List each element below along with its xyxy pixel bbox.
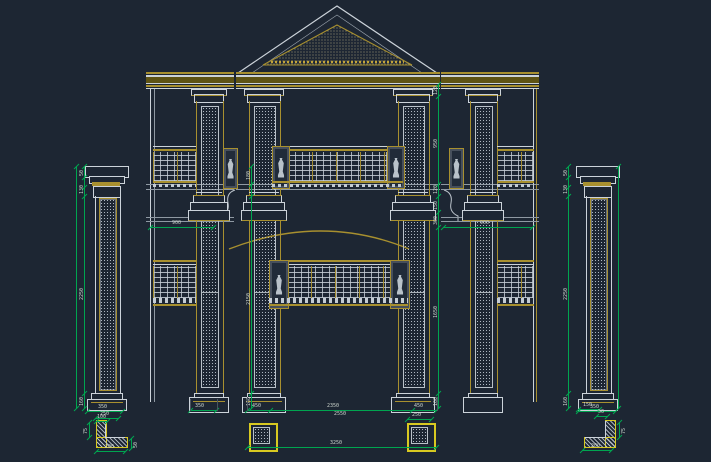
dim-label: 100	[97, 415, 106, 420]
dim-label: 120	[434, 86, 439, 95]
dim-label: 2550	[334, 412, 346, 417]
dim-corner-small	[131, 438, 132, 449]
cornice-line	[236, 85, 440, 87]
dim-label: 200	[105, 445, 114, 450]
dim-corner-top-right	[578, 409, 600, 410]
rail-dentils	[153, 184, 196, 187]
column-shaft	[95, 196, 121, 393]
dim-label: 2250	[564, 288, 569, 300]
dim-label: 900	[480, 221, 489, 226]
column-shaft	[398, 101, 430, 393]
rail-line	[153, 146, 196, 147]
dim-label: 250	[412, 413, 421, 418]
capital-line	[470, 192, 496, 193]
extension-line	[437, 397, 438, 411]
dim-label: 160	[564, 397, 569, 406]
dim-label: 3250	[330, 441, 342, 446]
dim-label: 200	[591, 444, 600, 449]
rail-line	[269, 264, 408, 265]
rail-dentils	[497, 298, 534, 303]
capital-band	[390, 210, 436, 221]
corner-inner-line	[585, 437, 605, 438]
rail-gold	[272, 181, 403, 183]
panel-divider	[202, 292, 218, 293]
corner-inner-line	[605, 421, 606, 438]
column-ornament-panel	[201, 106, 219, 388]
dim-extension-left	[76, 166, 77, 409]
cornice-line	[236, 72, 440, 74]
lattice-panel	[497, 266, 534, 298]
cornice-band	[146, 76, 234, 84]
dim-label: 150	[434, 201, 439, 210]
capital-line	[398, 192, 428, 193]
lattice-panel	[153, 266, 196, 298]
dim-label: 120	[434, 185, 439, 194]
dim-label: 350	[98, 405, 107, 410]
balustrade-2f-left-wing	[153, 146, 196, 187]
rail-dentils	[497, 184, 534, 187]
dim-left-wing-width	[150, 227, 214, 228]
dim-label: 150	[583, 403, 592, 408]
dim-label: 180	[247, 171, 252, 180]
dim-label: 50	[134, 442, 139, 448]
dim-extension-right	[618, 166, 619, 409]
pilaster-right-wing	[462, 88, 504, 418]
plinth-gold-line	[91, 402, 123, 403]
extension-line	[247, 397, 248, 411]
rail-gold	[153, 304, 196, 306]
rail-gold	[153, 181, 196, 183]
cornice-center	[236, 72, 440, 89]
rail-gold	[497, 260, 534, 262]
dim-label: 130	[564, 185, 569, 194]
rail-dentils	[269, 298, 408, 303]
panel-divider	[476, 292, 492, 293]
dim-corner-bottom	[96, 451, 126, 452]
dim-corner-top	[96, 421, 108, 422]
dim-label: 75	[84, 428, 89, 434]
dim-corner-side-right	[619, 422, 620, 438]
dim-label: 50	[598, 410, 604, 415]
corner-inner-line	[105, 437, 125, 438]
dim-facade-right	[438, 84, 439, 409]
dim-label: 50	[564, 170, 569, 176]
rail-gold	[497, 304, 534, 306]
dim-label: 2250	[80, 288, 85, 300]
rail-line	[272, 146, 403, 147]
dim-facade-left	[251, 166, 252, 409]
column-detail-left	[83, 160, 131, 410]
cornice-line	[146, 85, 234, 87]
column-center-left	[240, 88, 288, 418]
dim-label: 350	[195, 404, 204, 409]
rail-line	[497, 264, 534, 265]
column-shaft	[470, 101, 498, 393]
dim-label: 300	[434, 216, 439, 225]
balustrade-1f-center	[269, 260, 408, 307]
vase-ornament	[227, 159, 235, 179]
dim-wing-plinth	[190, 410, 217, 411]
pilaster-left-wing	[188, 88, 230, 418]
dim-label: 450	[252, 404, 261, 409]
extension-line	[217, 399, 218, 411]
dim-right-wing-width	[443, 227, 533, 228]
column-detail-right	[574, 160, 622, 410]
lattice-panel	[497, 152, 534, 181]
dim-label: 950	[434, 139, 439, 148]
dim-corner-bottom-right	[582, 450, 612, 451]
dim-corner-side	[89, 422, 90, 438]
column-shaft	[586, 196, 612, 393]
balustrade-2f-right-wing	[497, 146, 534, 187]
column-ornament-panel	[475, 106, 493, 388]
cad-canvas[interactable]: 50 130 2250 160 350 250 50 130 2250 160 …	[0, 0, 711, 462]
vase-ornament	[396, 275, 404, 295]
vase-ornament	[277, 158, 285, 178]
dim-label: 50	[80, 170, 85, 176]
dim-label: 75	[622, 428, 627, 434]
vase-ornament	[275, 275, 283, 295]
plinth-gold-line	[193, 401, 225, 402]
dim-label: 2350	[327, 404, 339, 409]
left-wing-wall-edge-inner	[154, 89, 155, 402]
dim-label: 160	[80, 397, 85, 406]
dim-label: 450	[414, 404, 423, 409]
rail-line	[497, 146, 534, 147]
rail-dentils	[153, 298, 196, 303]
column-shaft	[249, 101, 281, 393]
dim-square	[407, 419, 432, 420]
column-ornament-panel	[403, 106, 425, 388]
rail-gold	[269, 304, 408, 306]
capital-band	[241, 210, 287, 221]
capital-line	[196, 192, 222, 193]
cornice-line	[146, 72, 234, 74]
left-wing-wall-edge	[150, 89, 151, 402]
balustrade-1f-right-wing	[497, 260, 534, 307]
column-center-right	[389, 88, 437, 418]
column-ornament-panel	[590, 198, 608, 391]
rail-gold	[269, 260, 408, 262]
section-ornament	[253, 427, 270, 444]
lattice-panel	[287, 266, 390, 298]
rail-gold	[497, 181, 534, 183]
dim-label: 130	[80, 185, 85, 194]
vase-ornament	[453, 159, 461, 179]
balustrade-2f-center	[272, 146, 403, 187]
section-ornament	[411, 427, 428, 444]
rail-gold	[153, 260, 196, 262]
pediment-ornament-triangle	[263, 25, 412, 65]
vase-ornament	[392, 158, 400, 178]
plinth-gold-line	[395, 401, 431, 402]
balustrade-1f-left-wing	[153, 260, 196, 307]
dim-label: 900	[172, 221, 181, 226]
dim-corner-small-right	[596, 416, 608, 417]
right-wing-wall-edge	[533, 89, 534, 402]
cornice-line	[441, 72, 539, 74]
column-ornament-panel	[99, 198, 117, 391]
rail-dentils	[272, 184, 403, 187]
rail-gold	[153, 149, 196, 151]
rail-gold	[497, 149, 534, 151]
gap-baluster-post-right	[449, 148, 464, 189]
rail-gold	[272, 149, 403, 151]
column-shaft	[196, 101, 224, 393]
dim-facade-total	[247, 447, 437, 448]
cornice-band	[236, 76, 440, 84]
dim-label: 1650	[434, 306, 439, 318]
cornice-left-wing	[146, 72, 234, 89]
dim-label: 2150	[247, 293, 252, 305]
rail-line	[153, 264, 196, 265]
cornice-line	[441, 85, 539, 87]
plinth-block	[463, 397, 503, 413]
cornice-band	[441, 76, 539, 84]
cornice-right-wing	[441, 72, 539, 89]
lattice-panel	[288, 152, 387, 181]
right-wing-wall-edge-gold	[536, 89, 537, 402]
lattice-panel	[153, 152, 196, 181]
gap-baluster-post-left	[223, 148, 238, 189]
extension-line	[190, 399, 191, 411]
capital-band	[188, 210, 230, 221]
